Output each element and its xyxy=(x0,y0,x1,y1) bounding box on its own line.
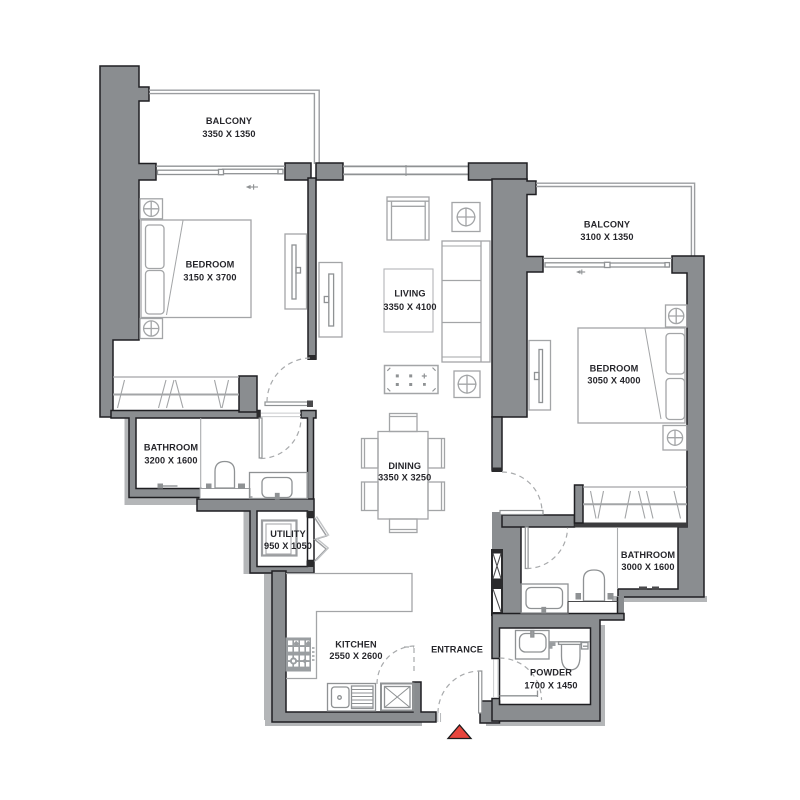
svg-text:3100 X 1350: 3100 X 1350 xyxy=(580,232,633,242)
svg-text:DINING: DINING xyxy=(388,461,421,471)
svg-text:BATHROOM: BATHROOM xyxy=(144,443,198,453)
svg-text:1700 X 1450: 1700 X 1450 xyxy=(524,680,577,690)
svg-text:3350 X 4100: 3350 X 4100 xyxy=(383,302,436,312)
svg-text:3350 X 3250: 3350 X 3250 xyxy=(378,472,431,482)
svg-text:3200 X 1600: 3200 X 1600 xyxy=(144,455,197,465)
svg-text:3150 X 3700: 3150 X 3700 xyxy=(183,273,236,283)
svg-text:3050 X 4000: 3050 X 4000 xyxy=(587,375,640,385)
svg-text:ENTRANCE: ENTRANCE xyxy=(431,644,483,654)
svg-text:BALCONY: BALCONY xyxy=(584,219,630,229)
svg-text:LIVING: LIVING xyxy=(394,288,425,298)
svg-text:3350 X 1350: 3350 X 1350 xyxy=(202,129,255,139)
svg-text:BEDROOM: BEDROOM xyxy=(590,363,639,373)
svg-text:POWDER: POWDER xyxy=(530,667,572,677)
svg-text:KITCHEN: KITCHEN xyxy=(335,639,377,649)
svg-text:UTILITY: UTILITY xyxy=(270,529,305,539)
svg-text:BATHROOM: BATHROOM xyxy=(621,550,675,560)
svg-text:BALCONY: BALCONY xyxy=(206,116,252,126)
svg-text:2550 X 2600: 2550 X 2600 xyxy=(329,651,382,661)
svg-text:3000 X 1600: 3000 X 1600 xyxy=(621,562,674,572)
svg-text:950 X 1050: 950 X 1050 xyxy=(264,541,312,551)
svg-text:BEDROOM: BEDROOM xyxy=(186,259,235,269)
